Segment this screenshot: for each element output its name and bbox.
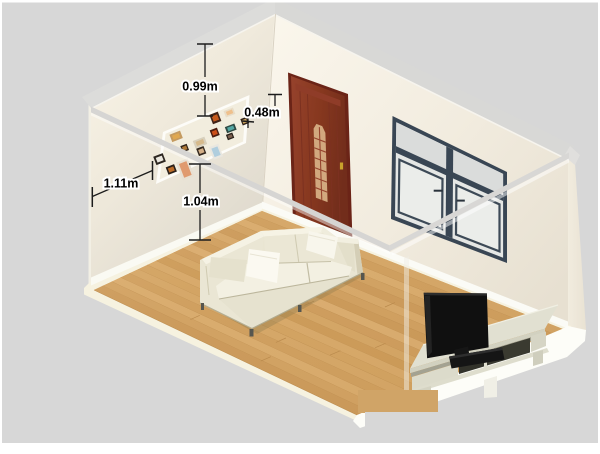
svg-text:1.11m: 1.11m bbox=[104, 176, 139, 190]
svg-text:0.48m: 0.48m bbox=[244, 105, 279, 119]
svg-text:0.99m: 0.99m bbox=[182, 79, 217, 93]
svg-text:1.04m: 1.04m bbox=[183, 194, 218, 208]
